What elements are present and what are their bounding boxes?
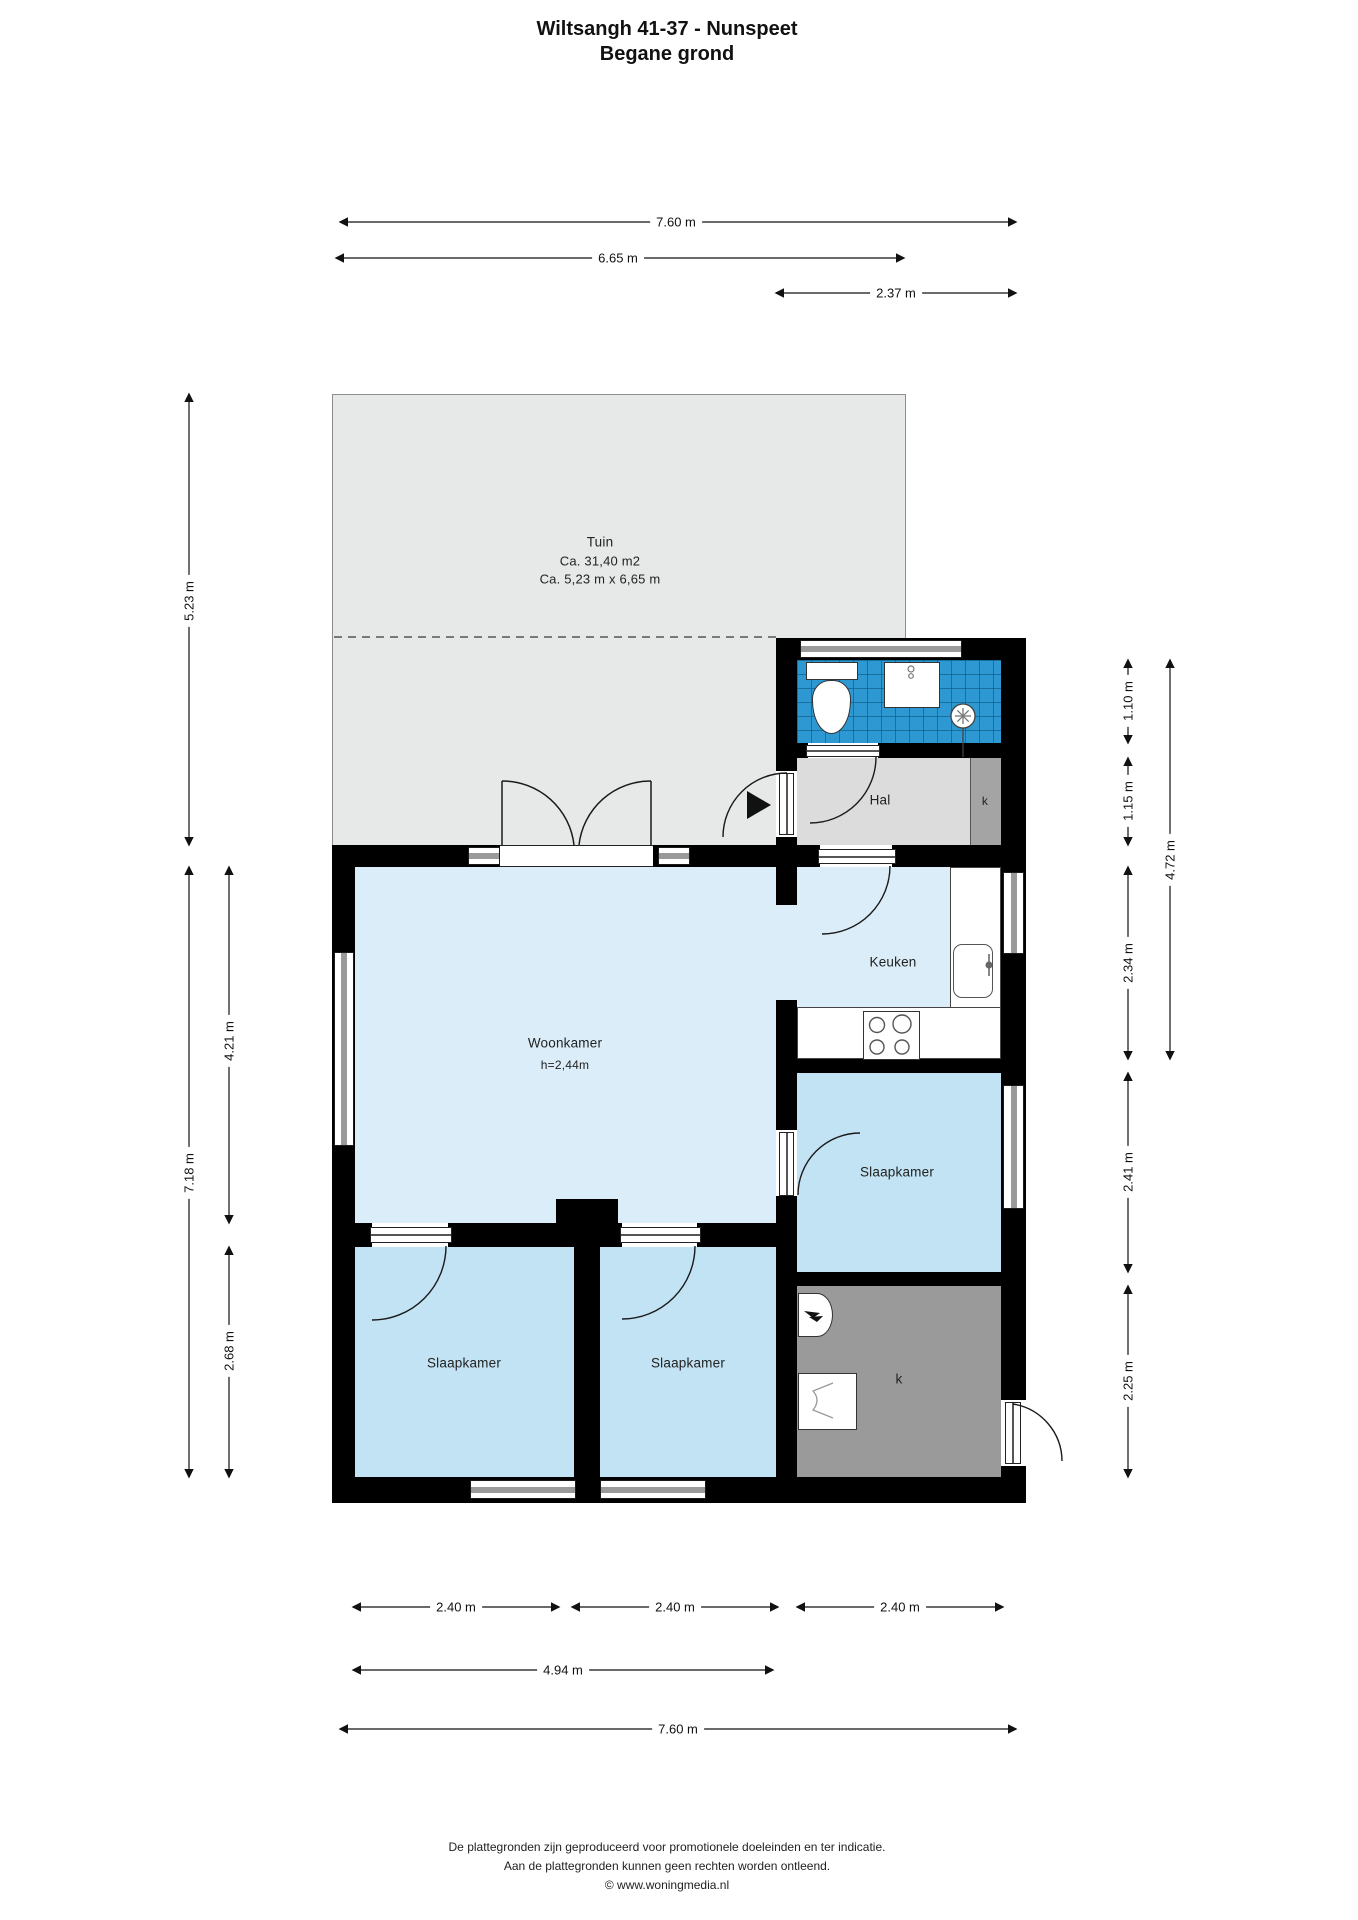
window-top-1	[468, 847, 500, 865]
dim-right-hal: 1.15 m	[1121, 775, 1136, 827]
wall-slaapkamer-berging	[797, 1272, 1001, 1286]
front-door-leaf	[779, 773, 794, 835]
dim-top-bathblock: 2.37 m	[870, 286, 922, 301]
french-door-opening	[500, 845, 653, 867]
berging-door-leaf	[1005, 1402, 1021, 1464]
dim-left-slaapkamer: 2.68 m	[222, 1325, 237, 1377]
wall-top-under-hal	[776, 845, 1026, 867]
footer-disclaimer-1: De plattegronden zijn geproduceerd voor …	[449, 1840, 886, 1854]
window-keuken-oost	[1003, 872, 1024, 954]
label-woonkamer-height: h=2,44m	[541, 1058, 589, 1072]
window-slaapkamer-midden-zuid	[600, 1480, 706, 1499]
dim-right-total: 4.72 m	[1163, 834, 1178, 886]
wall-slaapkamer1-2	[574, 1247, 600, 1477]
slaapkamer-links-door-leaf	[370, 1227, 452, 1243]
stove	[863, 1011, 920, 1060]
label-keuken: Keuken	[870, 955, 917, 970]
dim-bottom-room2: 2.40 m	[649, 1600, 701, 1615]
dim-right-berging: 2.25 m	[1121, 1355, 1136, 1407]
washer-boiler	[798, 1293, 833, 1337]
label-slaapkamer-rechts: Slaapkamer	[860, 1165, 934, 1180]
wall-keuken-slaapkamer	[797, 1059, 1001, 1073]
wall-midden-verticaal	[776, 1000, 797, 1477]
footer-disclaimer-2: Aan de plattegronden kunnen geen rechten…	[504, 1859, 830, 1873]
dim-left-garden: 5.23 m	[182, 575, 197, 627]
footer-copyright: © www.woningmedia.nl	[605, 1878, 729, 1892]
hal-keuken-door-leaf	[818, 849, 896, 864]
floorplan-page: Wiltsangh 41-37 - Nunspeet Begane grond	[0, 0, 1358, 1920]
dim-right-slaapkamer: 2.41 m	[1121, 1146, 1136, 1198]
label-tuin-area: Ca. 31,40 m2	[560, 554, 640, 569]
slaapkamer-midden-door-leaf	[620, 1227, 701, 1243]
label-woonkamer: Woonkamer	[528, 1036, 602, 1051]
page-title-address: Wiltsangh 41-37 - Nunspeet	[537, 18, 798, 41]
dim-bottom-total: 7.60 m	[652, 1722, 704, 1737]
window-woonkamer-west	[334, 952, 354, 1146]
label-tuin: Tuin	[587, 535, 614, 550]
label-hal: Hal	[870, 793, 891, 808]
wall-bathblock-east	[1001, 638, 1026, 867]
dim-bottom-room1: 2.40 m	[430, 1600, 482, 1615]
dim-bottom-room3: 2.40 m	[874, 1600, 926, 1615]
dim-left-woonkamer: 4.21 m	[222, 1015, 237, 1067]
dim-right-keuken: 2.34 m	[1121, 937, 1136, 989]
label-slaapkamer-links: Slaapkamer	[427, 1356, 501, 1371]
dim-right-badkamer: 1.10 m	[1121, 675, 1136, 727]
page-title-floor: Begane grond	[600, 43, 734, 66]
label-slaapkamer-midden: Slaapkamer	[651, 1356, 725, 1371]
dim-left-house: 7.18 m	[182, 1147, 197, 1199]
dim-top-garden: 6.65 m	[592, 251, 644, 266]
label-berging: k	[896, 1372, 903, 1387]
wall-column-stub	[556, 1199, 618, 1247]
dim-bottom-two-rooms: 4.94 m	[537, 1663, 589, 1678]
wall-stub-keuken-boven	[776, 867, 797, 905]
label-tuin-size: Ca. 5,23 m x 6,65 m	[540, 572, 661, 587]
label-hal-kast: k	[982, 794, 988, 808]
window-top-2	[658, 847, 690, 865]
laundry-sink	[798, 1373, 857, 1430]
dim-top-total: 7.60 m	[650, 215, 702, 230]
bathroom-door-leaf	[806, 745, 880, 757]
kitchen-sink	[953, 944, 993, 998]
window-badkamer	[800, 640, 962, 658]
toilet-tank	[806, 662, 858, 680]
window-slaapkamer-links-zuid	[470, 1480, 576, 1499]
passage-woonkamer-keuken	[776, 905, 797, 1000]
bathroom-sink	[884, 662, 940, 708]
slaapkamer-rechts-door-leaf	[779, 1132, 794, 1196]
window-slaapkamer-oost	[1003, 1085, 1024, 1209]
